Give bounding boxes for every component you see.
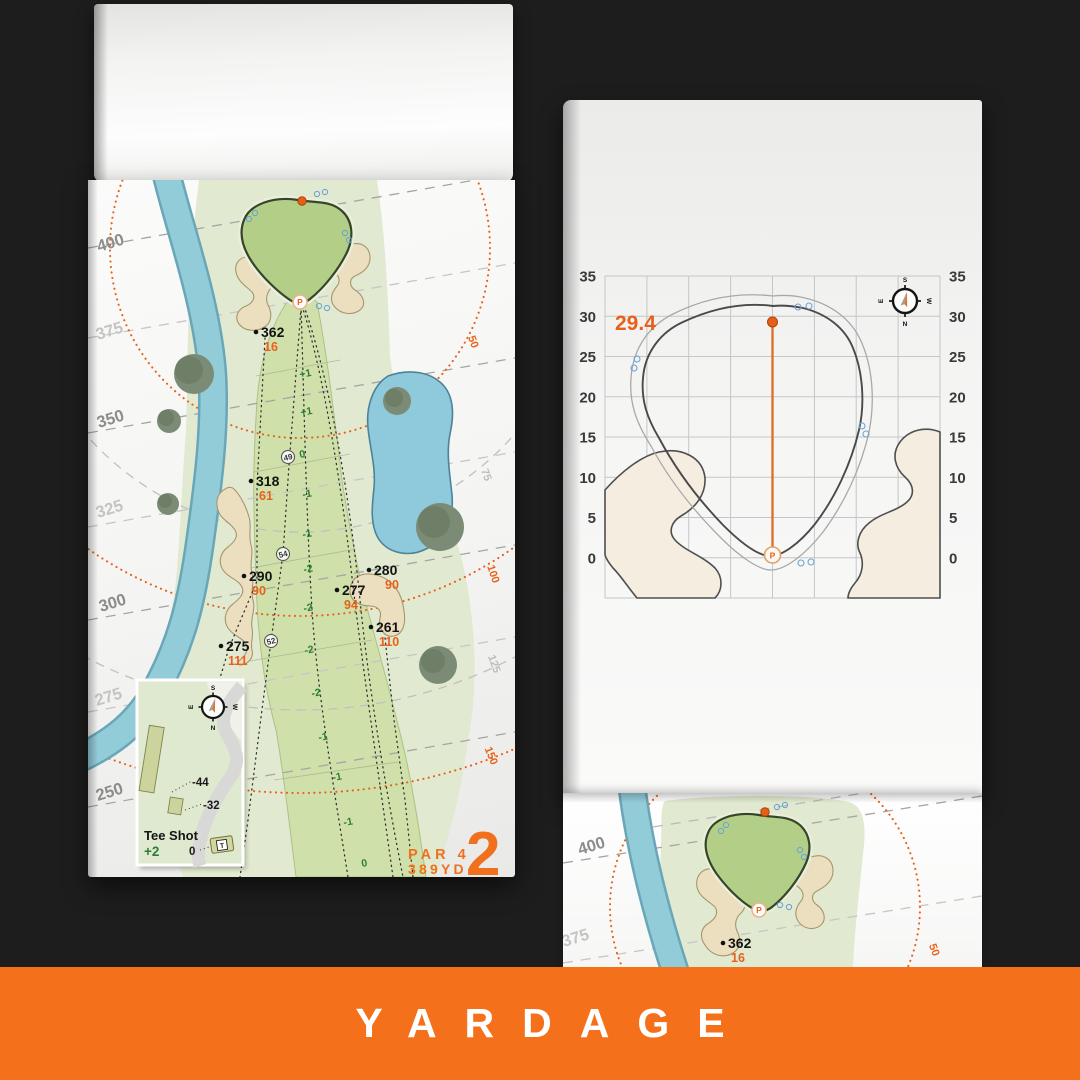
svg-text:16: 16 [731,951,745,965]
svg-text:110: 110 [379,635,399,649]
svg-text:E: E [878,298,885,303]
marker-318: 318 [256,473,280,489]
flipped-page [94,4,513,182]
svg-text:35: 35 [579,269,596,286]
svg-text:90: 90 [385,578,399,592]
svg-text:90: 90 [252,584,266,598]
next-hole-map: P 362 16 400 375 50 [563,793,982,967]
svg-text:W: W [231,704,238,711]
svg-text:111: 111 [228,654,248,668]
svg-text:+1: +1 [299,405,313,419]
ball-dot [761,808,769,816]
marker-290: 290 [249,568,273,584]
svg-text:125: 125 [485,653,503,674]
svg-text:10: 10 [949,470,966,487]
compass-icon: S N W E [878,277,932,328]
svg-text:15: 15 [579,430,596,447]
svg-text:5: 5 [588,510,596,527]
depth-axis-left: 35 30 25 20 15 10 5 0 [579,269,596,568]
back-tee-offset: -44 [192,777,209,789]
svg-text:E: E [188,704,195,709]
svg-text:20: 20 [579,389,596,406]
yardage-label: 389YD [408,861,467,877]
marker-261: 261 [376,619,400,635]
svg-text:350: 350 [95,407,127,432]
pin-marker: P [293,295,307,309]
svg-text:400: 400 [576,834,608,859]
svg-text:S: S [903,277,908,284]
green-detail: P 29.4 S N [563,100,982,793]
svg-text:S: S [211,685,216,692]
svg-text:362: 362 [728,935,752,951]
svg-text:P: P [756,905,762,915]
marker-277: 277 [342,582,366,598]
marker-280: 280 [374,562,398,578]
svg-text:150: 150 [482,745,500,767]
product-image: 49 54 52 +1 +1 0 -1 -1 -2 -2 -2 -2 -1 -1… [0,0,1080,1080]
svg-text:16: 16 [264,340,278,354]
svg-text:25: 25 [949,349,966,366]
yardage-band-labels: 400 375 [563,834,607,951]
svg-text:0: 0 [949,550,957,567]
front-tee-offset: -32 [203,800,220,812]
green-detail-page: P 29.4 S N [563,100,982,793]
svg-text:100: 100 [484,563,501,584]
marker-362: 362 [261,324,285,340]
ball-dot [298,197,306,205]
svg-text:250: 250 [94,780,126,805]
pin-marker: P [752,903,766,917]
svg-text:61: 61 [259,489,273,503]
svg-text:300: 300 [97,591,129,616]
svg-text:10: 10 [579,470,596,487]
svg-text:25: 25 [579,349,596,366]
svg-text:275: 275 [93,685,125,710]
svg-text:94: 94 [344,598,358,612]
svg-text:N: N [903,321,908,328]
svg-text:P: P [297,297,303,307]
svg-text:N: N [211,725,216,732]
svg-text:W: W [925,298,932,305]
hole-number: 2 [466,820,500,877]
svg-text:400: 400 [95,231,127,256]
svg-text:375: 375 [94,319,126,344]
depth-axis-right: 35 30 25 20 15 10 5 0 [949,269,966,568]
svg-text:30: 30 [949,309,966,326]
svg-text:375: 375 [563,926,591,951]
banner-label: YARDAGE [327,1000,752,1047]
svg-text:50: 50 [465,334,480,350]
svg-text:325: 325 [94,497,126,522]
green-pin: P [770,551,776,561]
hole-map: 49 54 52 +1 +1 0 -1 -1 -2 -2 -2 -2 -1 -1… [88,180,515,877]
ring-label: 50 [926,942,941,958]
svg-text:5: 5 [949,510,957,527]
yardage-banner: YARDAGE [0,967,1080,1080]
svg-text:0: 0 [588,550,596,567]
depth-value: 29.4 [615,312,656,335]
svg-text:75: 75 [478,467,493,483]
tee-shot-inset: S N W E -44 -32 Tee Shot +2 0 [137,680,246,869]
marker-275: 275 [226,638,250,654]
svg-text:+1: +1 [298,367,312,381]
tee-shot-score: +2 [144,844,159,859]
zero-offset: 0 [189,846,195,858]
inset-title: Tee Shot [144,828,199,843]
svg-text:35: 35 [949,269,966,286]
hole-map-page: 49 54 52 +1 +1 0 -1 -1 -2 -2 -2 -2 -1 -1… [88,180,515,877]
svg-text:20: 20 [949,389,966,406]
tee-marker-icon: T [210,836,234,854]
svg-text:30: 30 [579,309,596,326]
svg-text:15: 15 [949,430,966,447]
next-hole-page: P 362 16 400 375 50 [563,793,982,967]
